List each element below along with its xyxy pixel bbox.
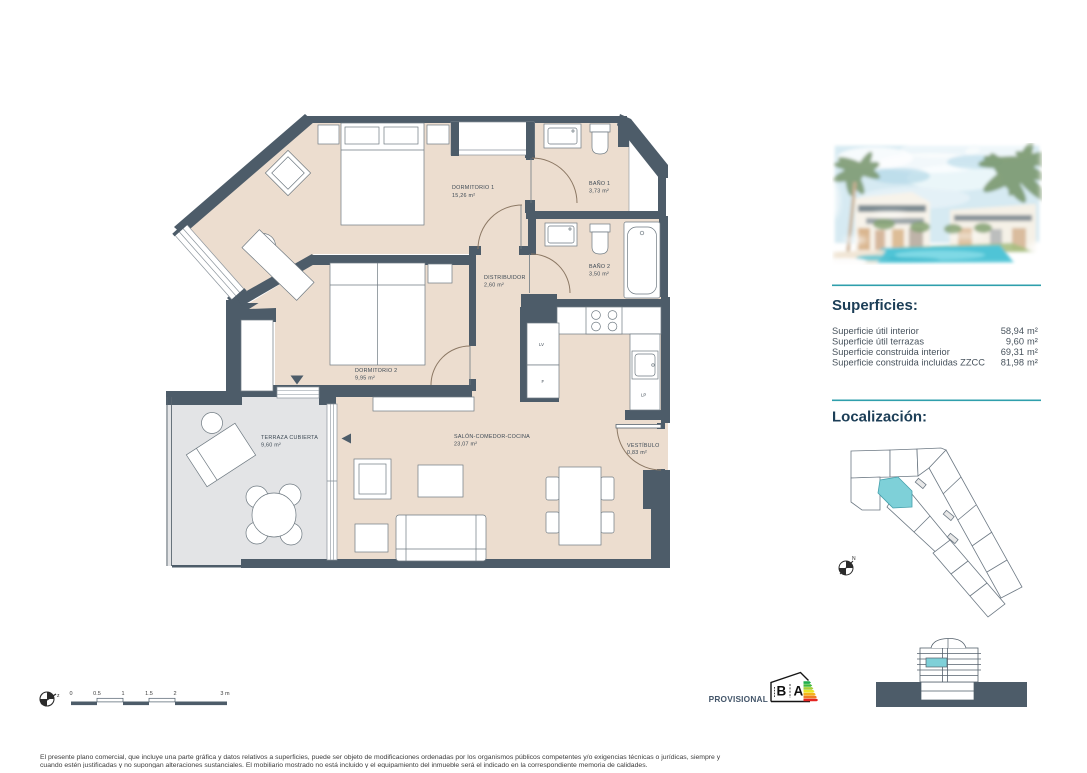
svg-text:A: A xyxy=(794,684,804,699)
svg-text:9,60 m²: 9,60 m² xyxy=(261,443,281,449)
svg-text:m²: m² xyxy=(1027,347,1038,357)
svg-text:81,98: 81,98 xyxy=(1001,358,1024,368)
svg-text:Superficies:: Superficies: xyxy=(832,297,918,314)
svg-text:Superficie útil interior: Superficie útil interior xyxy=(832,326,919,336)
svg-text:15,26 m²: 15,26 m² xyxy=(452,193,475,199)
svg-text:TERRAZA CUBIERTA: TERRAZA CUBIERTA xyxy=(261,435,318,441)
svg-text:Localización:: Localización: xyxy=(832,409,927,426)
svg-text:VESTÍBULO: VESTÍBULO xyxy=(627,442,660,449)
svg-text:1.5: 1.5 xyxy=(145,691,153,697)
svg-text:0: 0 xyxy=(69,691,72,697)
svg-text:DISTRIBUIDOR: DISTRIBUIDOR xyxy=(484,275,526,281)
svg-text:N: N xyxy=(852,556,856,562)
svg-text:BAÑO 1: BAÑO 1 xyxy=(589,180,610,187)
svg-text:Superficie construida interior: Superficie construida interior xyxy=(832,347,950,357)
svg-text:LP: LP xyxy=(641,393,646,398)
svg-text:PROVISIONAL: PROVISIONAL xyxy=(709,694,768,704)
svg-text:DORMITORIO 1: DORMITORIO 1 xyxy=(452,185,494,191)
svg-text:2: 2 xyxy=(173,691,176,697)
svg-text:3 m: 3 m xyxy=(220,691,230,697)
svg-text:m²: m² xyxy=(1027,337,1038,347)
svg-text:z: z xyxy=(57,693,60,699)
svg-text:0.5: 0.5 xyxy=(93,691,101,697)
svg-text:1: 1 xyxy=(121,691,124,697)
svg-text:58,94: 58,94 xyxy=(1001,326,1024,336)
svg-text:9,95 m²: 9,95 m² xyxy=(355,376,375,382)
svg-text:3,73 m²: 3,73 m² xyxy=(589,189,609,195)
svg-text:Superficie útil terrazas: Superficie útil terrazas xyxy=(832,337,924,347)
svg-text:m²: m² xyxy=(1027,326,1038,336)
svg-text:BAÑO 2: BAÑO 2 xyxy=(589,263,610,270)
svg-text:0,83 m²: 0,83 m² xyxy=(627,450,647,456)
svg-text:SALÓN-COMEDOR-COCINA: SALÓN-COMEDOR-COCINA xyxy=(454,433,530,440)
svg-text:9,60: 9,60 xyxy=(1006,337,1024,347)
svg-text:Superficie construida incluida: Superficie construida incluidas ZZCC xyxy=(832,358,985,368)
svg-text:m²: m² xyxy=(1027,358,1038,368)
svg-text:23,07 m²: 23,07 m² xyxy=(454,442,477,448)
svg-text:LV: LV xyxy=(539,342,544,347)
svg-text:El presente plano comercial, q: El presente plano comercial, que incluye… xyxy=(40,754,721,761)
svg-text:DORMITORIO 2: DORMITORIO 2 xyxy=(355,368,397,374)
svg-text:F: F xyxy=(542,379,545,384)
svg-text:cuando estén justificadas y no: cuando estén justificadas y no supongan … xyxy=(40,762,648,768)
svg-text:B: B xyxy=(777,684,787,699)
svg-text:2,60 m²: 2,60 m² xyxy=(484,283,504,289)
svg-text:3,50 m²: 3,50 m² xyxy=(589,272,609,278)
svg-text:69,31: 69,31 xyxy=(1001,347,1024,357)
